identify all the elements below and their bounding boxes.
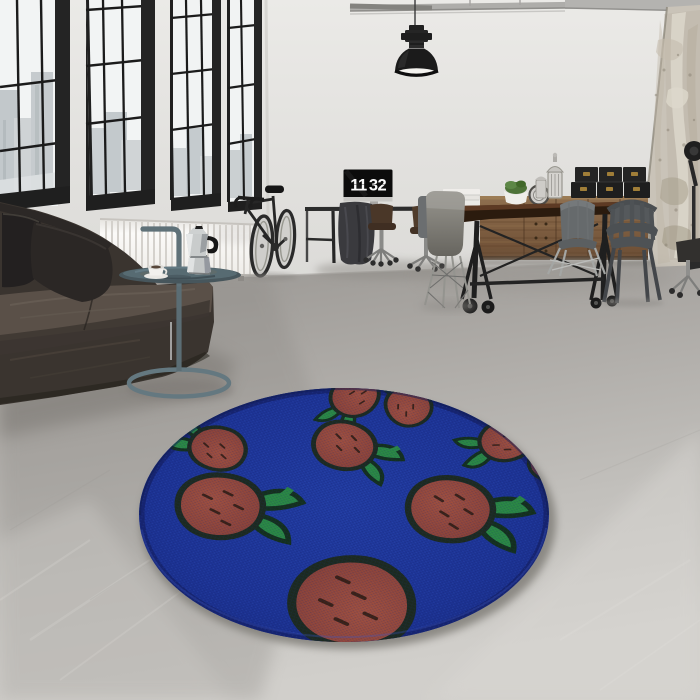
svg-text:32: 32 [369, 177, 387, 195]
